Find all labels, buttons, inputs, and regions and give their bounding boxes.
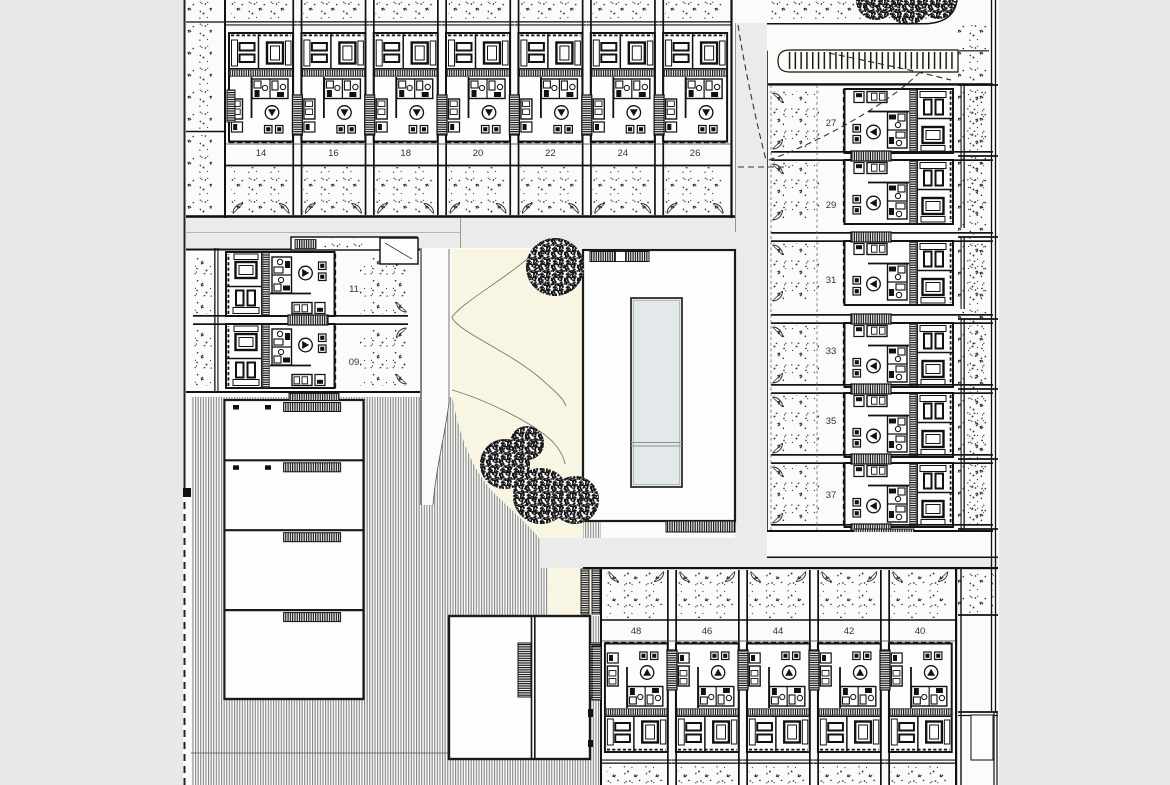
svg-text:14: 14: [256, 148, 267, 159]
svg-text:35: 35: [826, 416, 837, 427]
svg-text:24: 24: [618, 148, 629, 159]
svg-text:16: 16: [328, 148, 339, 159]
svg-text:11: 11: [349, 284, 359, 295]
svg-text:48: 48: [631, 626, 642, 637]
svg-text:40: 40: [915, 626, 926, 637]
svg-text:20: 20: [473, 148, 484, 159]
svg-text:31: 31: [826, 275, 837, 286]
svg-text:09: 09: [349, 357, 360, 368]
svg-text:44: 44: [773, 626, 784, 637]
svg-text:26: 26: [690, 148, 701, 159]
svg-text:42: 42: [844, 626, 855, 637]
svg-text:46: 46: [702, 626, 713, 637]
svg-text:33: 33: [826, 346, 837, 357]
svg-text:37: 37: [826, 490, 837, 501]
svg-text:18: 18: [400, 148, 411, 159]
svg-text:29: 29: [826, 200, 837, 211]
svg-text:27: 27: [826, 118, 837, 129]
svg-text:22: 22: [545, 148, 556, 159]
